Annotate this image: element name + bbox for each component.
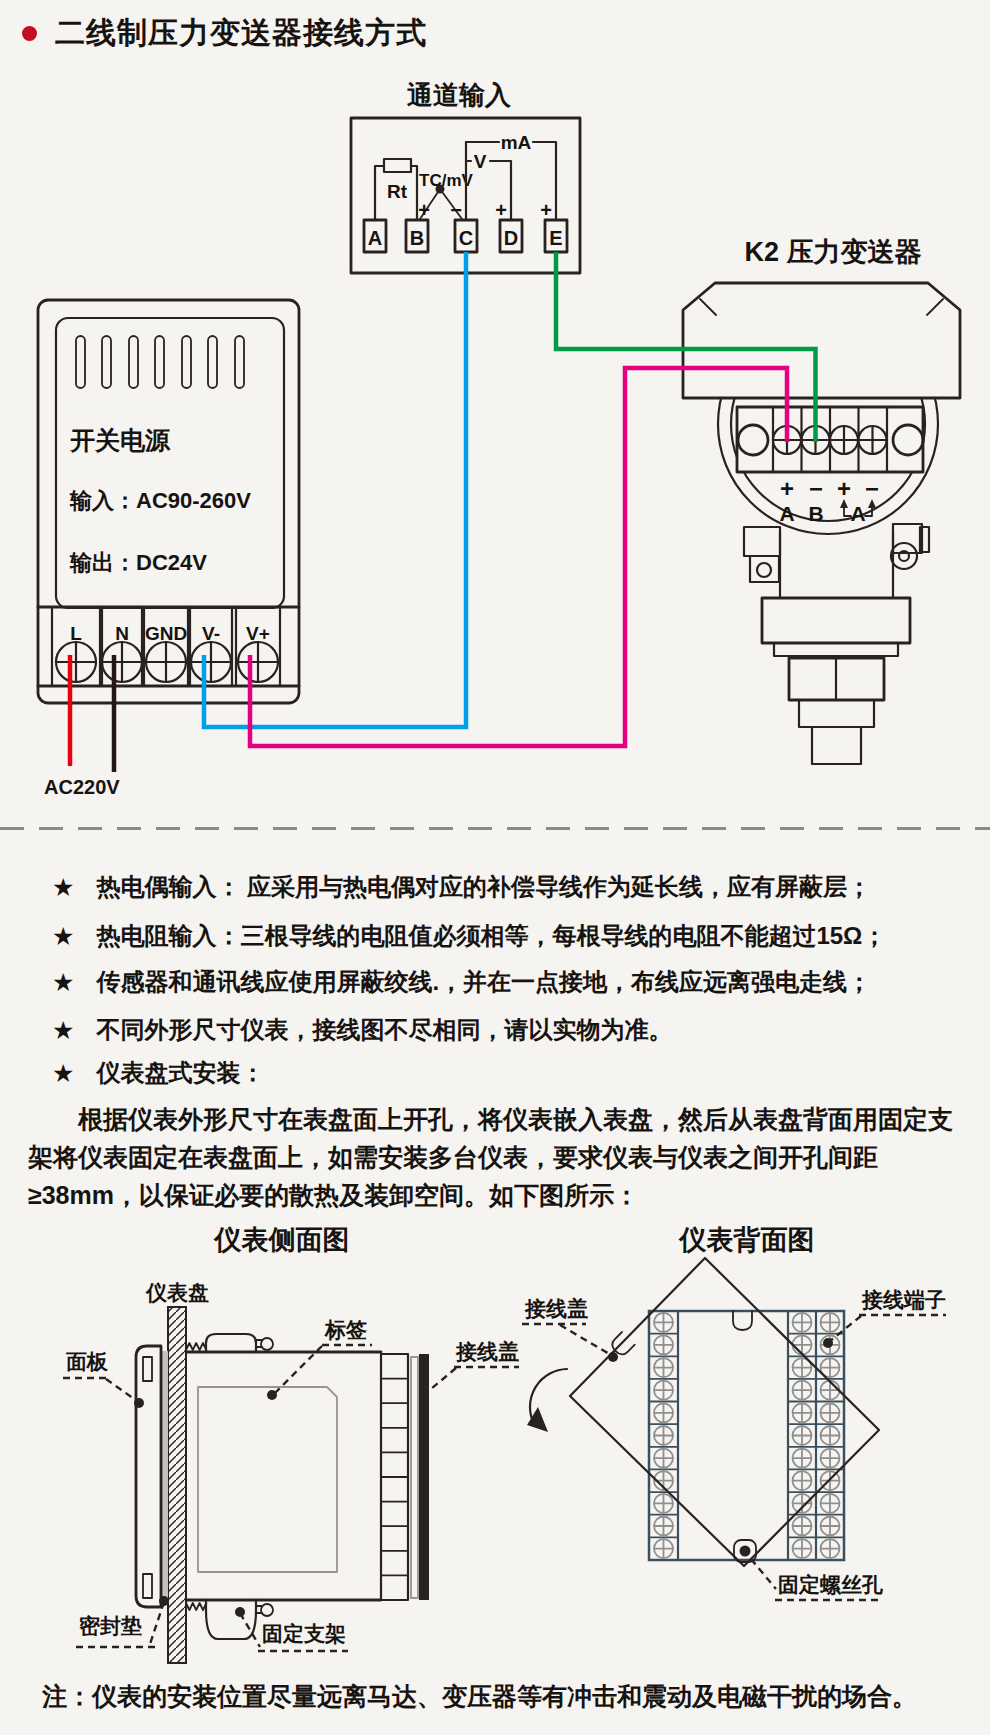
svg-text:−: −	[809, 475, 823, 502]
plus-sign-b: +	[418, 199, 430, 221]
channel-terminals: A B C D E	[364, 220, 567, 252]
rt-resistor: Rt	[375, 159, 417, 220]
install-paragraph: 根据仪表外形尺寸在表盘面上开孔，将仪表嵌入表盘，然后从表盘背面用固定支架将仪表固…	[28, 1100, 966, 1214]
star-icon: ★	[52, 921, 74, 951]
transmitter-term-a: A	[779, 502, 794, 525]
transmitter-screw-3	[830, 426, 858, 454]
terminal-vminus-label: V-	[202, 623, 220, 644]
front-bezel	[136, 1346, 161, 1607]
channel-input-block: 通道输入 A B C D E Rt	[351, 80, 580, 273]
panel-board-wall	[168, 1307, 186, 1663]
svg-text:−: −	[865, 475, 879, 502]
note-row-1: ★ 热电偶输入： 应采用与热电偶对应的补偿导线作为延长线，应有屏蔽层；	[52, 872, 871, 902]
svg-text:+: +	[837, 475, 851, 502]
channel-input-title: 通道输入	[406, 80, 512, 110]
transmitter-top-cap	[683, 283, 960, 398]
note-row-2: ★ 热电阻输入：三根导线的电阻值必须相等，每根导线的电阻不能超过15Ω；	[52, 921, 886, 951]
transmitter-body	[744, 524, 929, 764]
star-icon: ★	[52, 1058, 74, 1088]
bezel-slot-top	[143, 1357, 152, 1381]
mains-voltage-label: AC220V	[44, 776, 120, 798]
terminal-gnd-label: GND	[145, 623, 187, 644]
note-text-3: 传感器和通讯线应使用屏蔽绞线.，并在一点接地，布线应远离强电走线；	[96, 967, 871, 997]
terminal-c-label: C	[459, 227, 473, 249]
terminal-cover-plate	[419, 1354, 429, 1600]
terminal-e-label: E	[549, 227, 562, 249]
ma-label: mA	[501, 132, 532, 153]
bezel-slot-bottom	[143, 1574, 152, 1598]
note-row-4: ★ 不同外形尺寸仪表，接线图不尽相同，请以实物为准。	[52, 1015, 672, 1045]
note-text-5: 仪表盘式安装：	[96, 1058, 264, 1088]
note-row-3: ★ 传感器和通讯线应使用屏蔽绞线.，并在一点接地，布线应远离强电走线；	[52, 967, 871, 997]
gasket-callout: 密封垫	[76, 1596, 169, 1647]
installation-diagrams: 仪表侧面图	[0, 1210, 990, 1670]
wire-vplus-to-transmitter-magenta	[250, 368, 787, 746]
svg-text:固定支架: 固定支架	[262, 1622, 346, 1645]
terminal-n-label: N	[115, 623, 129, 644]
rear-terminal-ladder	[381, 1354, 429, 1600]
plus-sign-e: +	[540, 199, 552, 221]
star-icon: ★	[52, 1015, 74, 1045]
power-supply-input: 输入：AC90-260V	[69, 488, 251, 513]
svg-text:面板: 面板	[65, 1350, 109, 1373]
back-left-terminal-column	[649, 1311, 678, 1560]
top-fixing-bracket	[186, 1334, 273, 1352]
side-view-title: 仪表侧面图	[213, 1225, 350, 1255]
note-text-1: 热电偶输入： 应采用与热电偶对应的补偿导线作为延长线，应有屏蔽层；	[96, 872, 871, 902]
panel-board-label: 仪表盘	[145, 1281, 209, 1304]
svg-text:接线盖: 接线盖	[455, 1340, 519, 1363]
note-text-2: 热电阻输入：三根导线的电阻值必须相等，每根导线的电阻不能超过15Ω；	[96, 921, 886, 951]
terminal-block-callout: 接线端子	[823, 1288, 946, 1348]
terminal-l-label: L	[70, 623, 82, 644]
svg-text:+: +	[780, 475, 794, 502]
terminal-b-label: B	[410, 227, 424, 249]
power-supply-name: 开关电源	[69, 426, 171, 454]
back-view-title: 仪表背面图	[678, 1225, 815, 1255]
bottom-fixing-bracket	[186, 1600, 273, 1639]
transmitter-terminal-strip	[737, 407, 923, 472]
back-terminal-cover-callout: 接线盖	[522, 1297, 618, 1362]
section-bullet-icon	[22, 26, 37, 41]
v-label: V	[474, 151, 487, 172]
transmitter-term-b: B	[808, 502, 823, 525]
minus-sign-c: −	[450, 199, 462, 221]
note-text-4: 不同外形尺寸仪表，接线图不尽相同，请以实物为准。	[96, 1015, 672, 1045]
svg-text:接线盖: 接线盖	[524, 1297, 588, 1320]
top-clip	[733, 1311, 752, 1330]
note-row-5: ★ 仪表盘式安装：	[52, 1058, 264, 1088]
dashed-divider	[0, 827, 990, 830]
plus-sign-d: +	[495, 199, 507, 221]
svg-text:标签: 标签	[324, 1318, 367, 1341]
transmitter-screw-4	[859, 426, 887, 454]
rotate-arrow-icon	[527, 1369, 567, 1432]
svg-text:固定螺丝孔: 固定螺丝孔	[778, 1573, 883, 1596]
screw-hole-callout: 固定螺丝孔	[751, 1559, 883, 1600]
svg-text:接线端子: 接线端子	[861, 1288, 946, 1311]
power-terminal-strip: L N GND V- V+	[38, 607, 299, 686]
tag-rectangle	[198, 1387, 337, 1572]
rt-label: Rt	[387, 181, 408, 202]
terminal-vplus-label: V+	[246, 623, 270, 644]
power-terminal-screws	[56, 642, 278, 682]
instrument-body-outline	[186, 1352, 381, 1600]
terminal-a-label: A	[368, 227, 382, 249]
star-icon: ★	[52, 872, 74, 902]
page-title: 二线制压力变送器接线方式	[55, 13, 427, 54]
svg-text:密封垫: 密封垫	[79, 1614, 142, 1637]
wiring-diagram: 通道输入 A B C D E Rt	[0, 60, 990, 810]
vent-slots	[76, 336, 244, 388]
side-view-diagram: 仪表侧面图	[63, 1225, 519, 1663]
transmitter-bracket-label: A	[850, 502, 865, 525]
power-supply-block: 开关电源 输入：AC90-260V 输出：DC24V L N GND V- V+	[38, 300, 299, 798]
power-supply-output: 输出：DC24V	[69, 550, 207, 575]
star-icon: ★	[52, 967, 74, 997]
manual-page: 二线制压力变送器接线方式 通道输入 A B C D	[0, 0, 990, 1735]
pressure-transmitter: K2 压力变送器 + − + − A B	[683, 237, 960, 764]
bottom-note: 注：仪表的安装位置尽量远离马达、变压器等有冲击和震动及电磁干扰的场合。	[42, 1680, 917, 1713]
side-terminal-cover-callout: 接线盖	[431, 1340, 519, 1389]
transmitter-title: K2 压力变送器	[744, 237, 921, 267]
back-view-diagram: 仪表背面图	[522, 1225, 946, 1600]
front-panel-callout: 面板	[63, 1350, 144, 1408]
terminal-d-label: D	[504, 227, 518, 249]
